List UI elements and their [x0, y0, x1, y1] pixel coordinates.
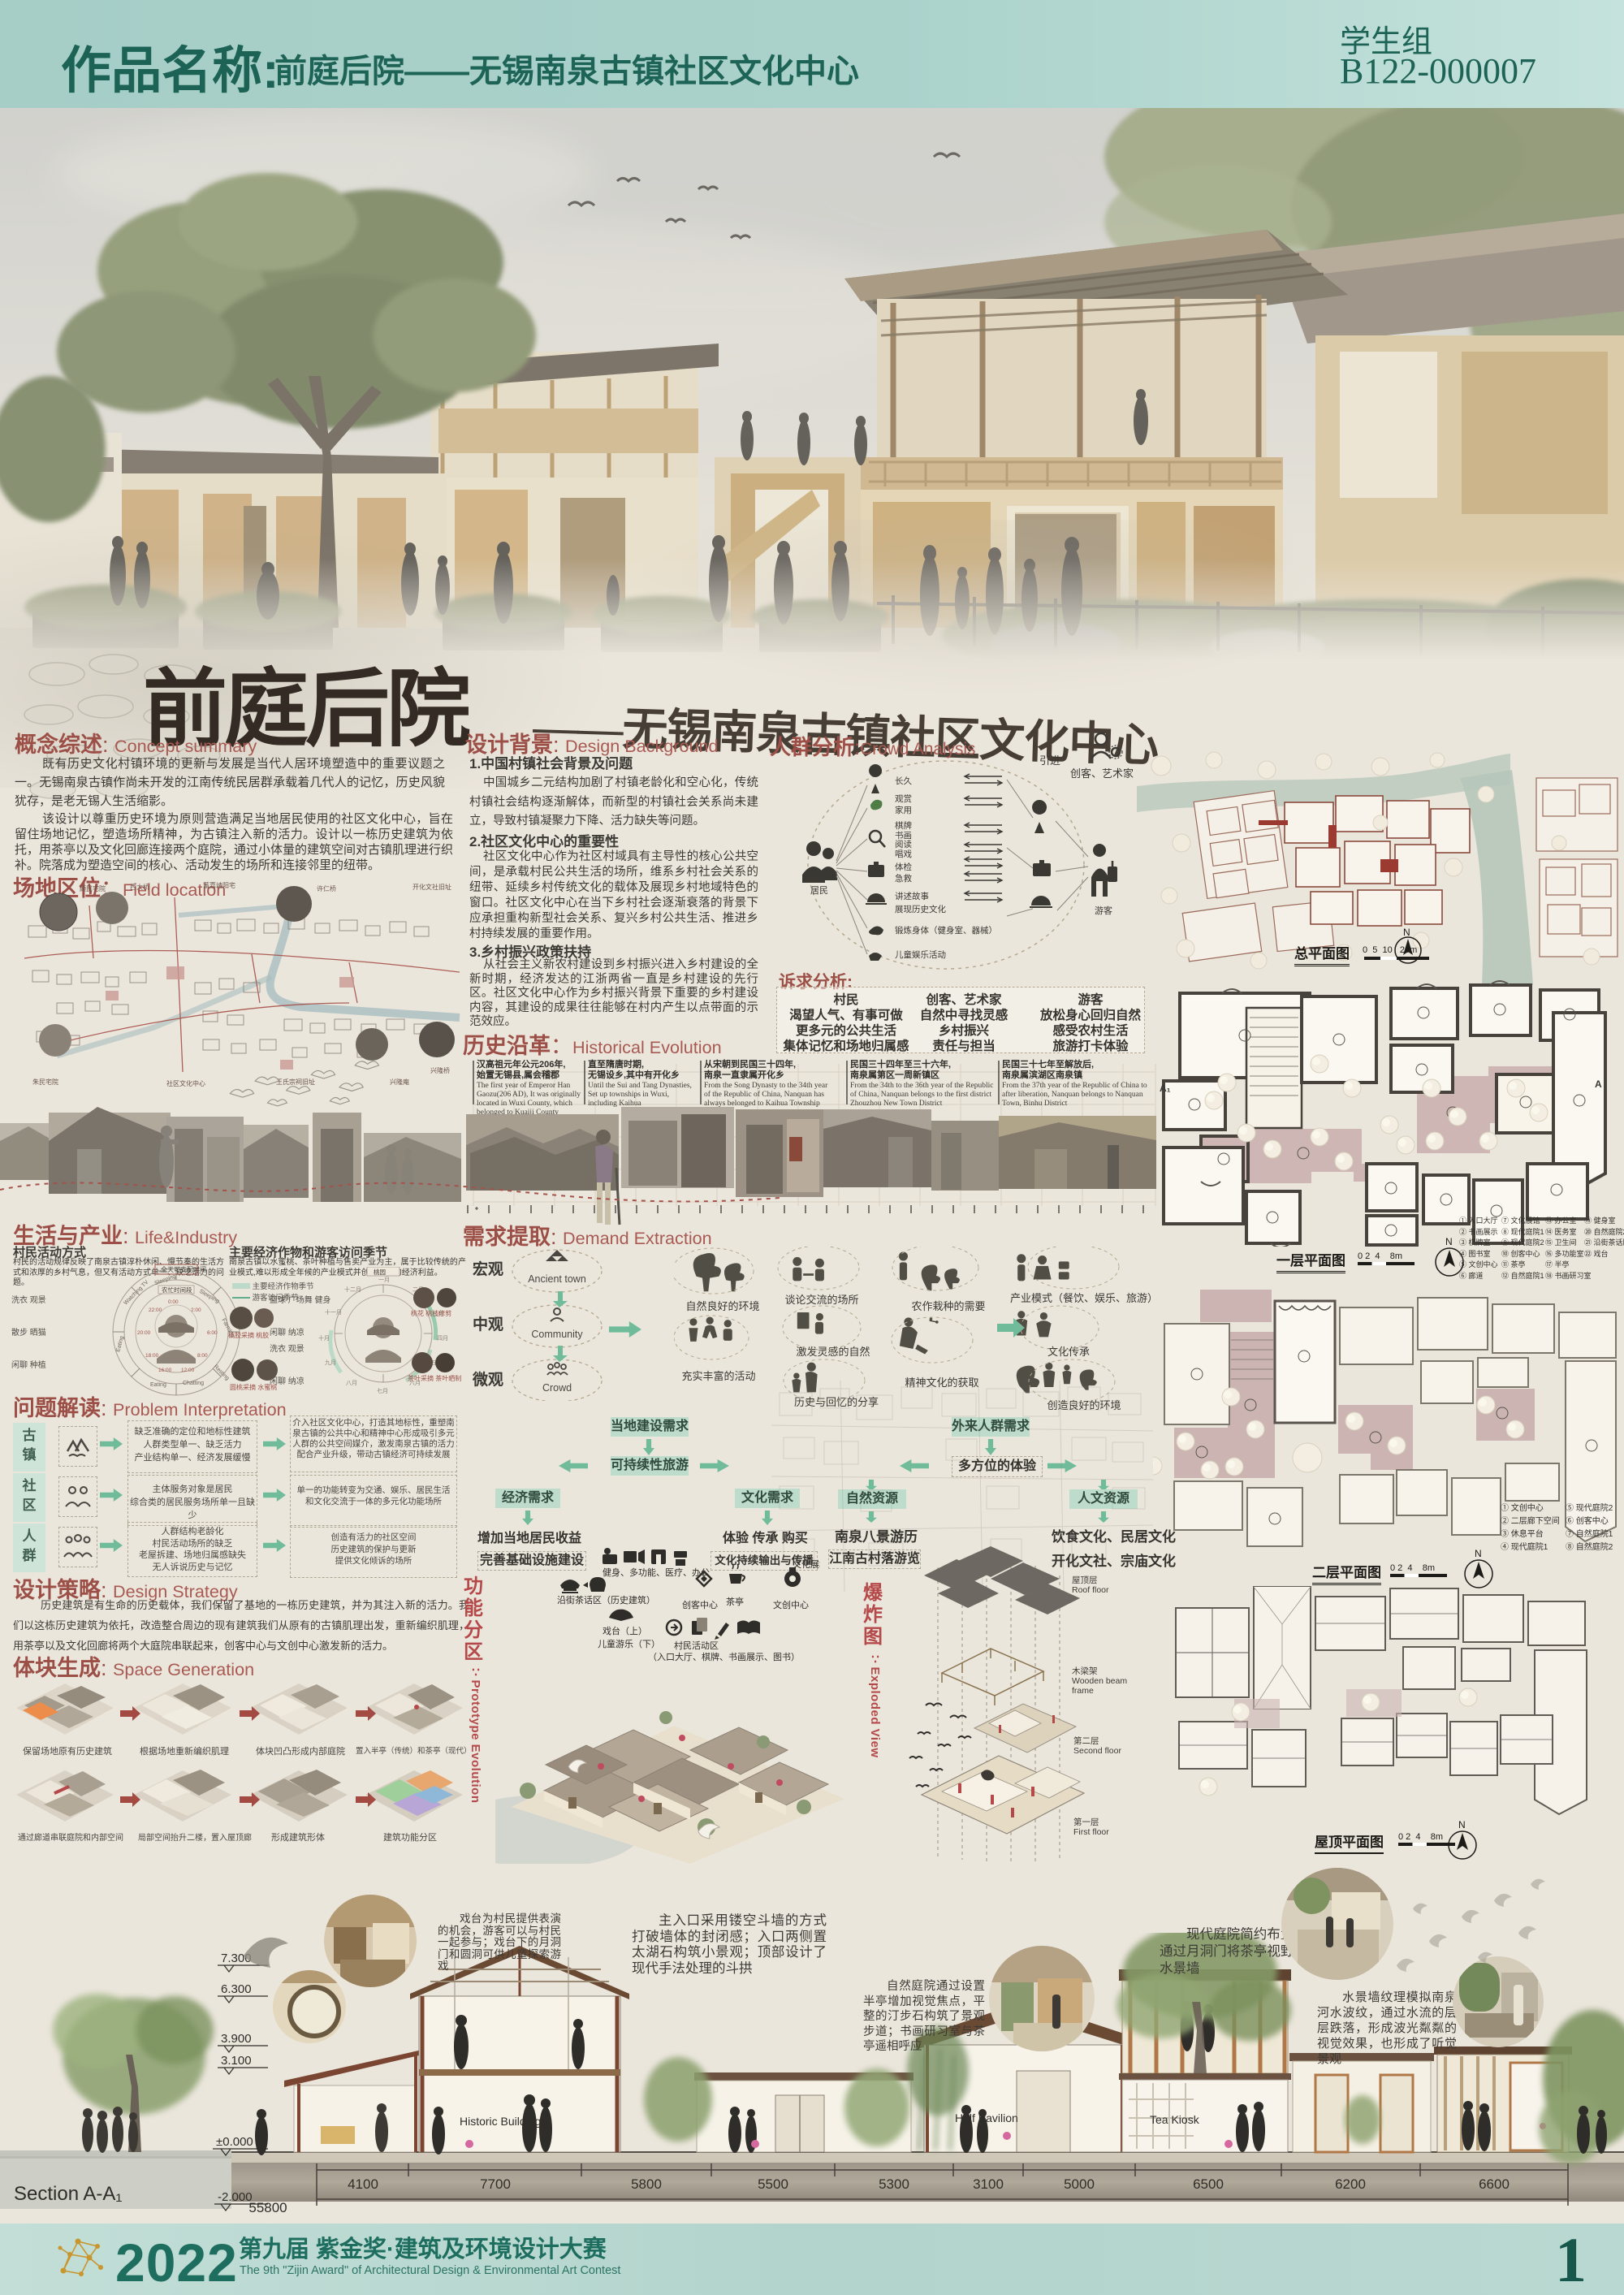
svg-text:N: N — [1458, 1819, 1466, 1830]
svg-text:充实丰富的活动: 充实丰富的活动 — [681, 1370, 755, 1382]
svg-text:Chatting: Chatting — [183, 1381, 204, 1386]
svg-text:N: N — [1475, 1548, 1482, 1559]
svg-text:Eating: Eating — [115, 1335, 125, 1352]
svg-text:6200: 6200 — [1335, 2176, 1366, 2192]
svg-text:8:00: 8:00 — [197, 1353, 208, 1359]
svg-text:社区文化中心: 社区文化中心 — [166, 1079, 205, 1087]
svg-text:Community: Community — [531, 1329, 583, 1340]
svg-text:急救: 急救 — [895, 873, 913, 884]
svg-text:谈论交流的场所: 谈论交流的场所 — [784, 1294, 858, 1306]
svg-text:产业模式（餐饮、娱乐、旅游）: 产业模式（餐饮、娱乐、旅游） — [1010, 1292, 1158, 1304]
svg-text:全天可支配时间: 全天可支配时间 — [161, 1265, 206, 1273]
svg-text:西大桥: 西大桥 — [130, 883, 149, 891]
svg-text:Watching TV: Watching TV — [123, 1279, 149, 1306]
svg-text:展现历史文化: 展现历史文化 — [895, 904, 946, 914]
svg-text:6.300: 6.300 — [221, 1982, 252, 1996]
svg-text:家用: 家用 — [895, 805, 912, 815]
svg-text:5800: 5800 — [631, 2176, 662, 2192]
svg-text:-2.000: -2.000 — [218, 2190, 253, 2204]
svg-text:茶叶采摘 茶叶晒制: 茶叶采摘 茶叶晒制 — [408, 1374, 461, 1382]
svg-text:7700: 7700 — [480, 2176, 511, 2192]
svg-text:开化文社旧址: 开化文社旧址 — [412, 883, 451, 891]
svg-text:圆桃采摘 水蜜桃: 圆桃采摘 水蜜桃 — [230, 1383, 277, 1391]
svg-text:九月: 九月 — [325, 1359, 336, 1366]
svg-text:6:00: 6:00 — [207, 1330, 218, 1336]
svg-text:创客、艺术家: 创客、艺术家 — [1070, 767, 1134, 780]
svg-text:3.900: 3.900 — [221, 2032, 252, 2046]
svg-text:N: N — [1403, 927, 1410, 938]
svg-text:创客中心: 创客中心 — [682, 1599, 718, 1610]
svg-text:棋牌: 棋牌 — [895, 820, 913, 831]
svg-text:文创中心: 文创中心 — [773, 1599, 809, 1610]
svg-text:桃花 桃枝修剪: 桃花 桃枝修剪 — [411, 1309, 451, 1317]
svg-text:村民活动区: 村民活动区 — [674, 1640, 719, 1651]
svg-text:桃胶采摘 桃胶: 桃胶采摘 桃胶 — [228, 1331, 269, 1339]
svg-text:儿童娱乐活动: 儿童娱乐活动 — [895, 949, 946, 960]
svg-text:茶亭: 茶亭 — [726, 1596, 744, 1607]
svg-text:兴隆桥: 兴隆桥 — [430, 1066, 450, 1074]
svg-text:Ancient town: Ancient town — [528, 1273, 586, 1285]
svg-text:引进: 引进 — [1039, 754, 1060, 767]
svg-text:十月: 十月 — [318, 1334, 330, 1342]
svg-text:Crowd: Crowd — [542, 1382, 572, 1394]
svg-text:居民: 居民 — [810, 886, 828, 896]
svg-text:55800: 55800 — [248, 2200, 287, 2215]
svg-text:文化展墙: 文化展墙 — [793, 1558, 820, 1570]
svg-text:儿童游乐（下）: 儿童游乐（下） — [598, 1638, 660, 1649]
svg-text:蓄嘉靖阳宅: 蓄嘉靖阳宅 — [203, 881, 235, 889]
svg-text:±0.000: ±0.000 — [216, 2135, 253, 2149]
svg-text:阅读: 阅读 — [895, 839, 913, 849]
svg-text:6500: 6500 — [1193, 2176, 1224, 2192]
svg-text:N: N — [1445, 1236, 1453, 1247]
svg-text:唱戏: 唱戏 — [895, 849, 913, 859]
svg-text:4100: 4100 — [348, 2176, 378, 2192]
svg-text:激发灵感的自然: 激发灵感的自然 — [796, 1346, 870, 1358]
svg-text:Sleeping: Sleeping — [154, 1273, 177, 1286]
svg-text:十一月: 十一月 — [325, 1308, 342, 1316]
svg-text:16:00: 16:00 — [158, 1368, 172, 1373]
svg-text:许仁桥: 许仁桥 — [317, 884, 336, 892]
svg-text:锻炼身体（健身室、器械）: 锻炼身体（健身室、器械） — [895, 925, 997, 936]
svg-text:观赏: 观赏 — [895, 794, 912, 804]
svg-text:沿街茶话区（历史建筑）: 沿街茶话区（历史建筑） — [557, 1594, 655, 1606]
svg-text:Eating: Eating — [150, 1382, 166, 1388]
svg-text:戏台（上）: 戏台（上） — [603, 1625, 647, 1636]
svg-text:朱民宅院: 朱民宅院 — [32, 1078, 58, 1086]
svg-text:（入口大厅、棋牌、书画展示、图书）: （入口大厅、棋牌、书画展示、图书） — [648, 1651, 800, 1662]
svg-text:讲述故事: 讲述故事 — [895, 891, 929, 901]
svg-text:3.100: 3.100 — [221, 2054, 252, 2068]
svg-text:体检: 体检 — [895, 862, 913, 872]
svg-text:长久: 长久 — [895, 776, 913, 786]
svg-text:3100: 3100 — [973, 2176, 1004, 2192]
svg-text:农作栽种的需要: 农作栽种的需要 — [911, 1300, 985, 1312]
svg-text:5000: 5000 — [1064, 2176, 1095, 2192]
svg-text:八月: 八月 — [346, 1380, 357, 1386]
svg-text:5500: 5500 — [758, 2176, 788, 2192]
svg-text:农忙时间段: 农忙时间段 — [162, 1286, 192, 1294]
svg-text:18:00: 18:00 — [145, 1353, 159, 1359]
svg-text:兴隆庵: 兴隆庵 — [390, 1078, 409, 1086]
svg-text:20:00: 20:00 — [137, 1330, 151, 1336]
svg-text:6600: 6600 — [1479, 2176, 1510, 2192]
svg-text:0:00: 0:00 — [168, 1299, 179, 1305]
svg-text:文化传承: 文化传承 — [1047, 1346, 1090, 1358]
svg-text:自然良好的环境: 自然良好的环境 — [685, 1300, 759, 1312]
svg-text:5300: 5300 — [879, 2176, 909, 2192]
svg-text:12:00: 12:00 — [181, 1368, 195, 1373]
svg-text:顾民宅院: 顾民宅院 — [80, 884, 106, 892]
svg-text:游客: 游客 — [1095, 905, 1112, 916]
svg-text:健身、多功能、医疗、办公: 健身、多功能、医疗、办公 — [603, 1567, 710, 1578]
